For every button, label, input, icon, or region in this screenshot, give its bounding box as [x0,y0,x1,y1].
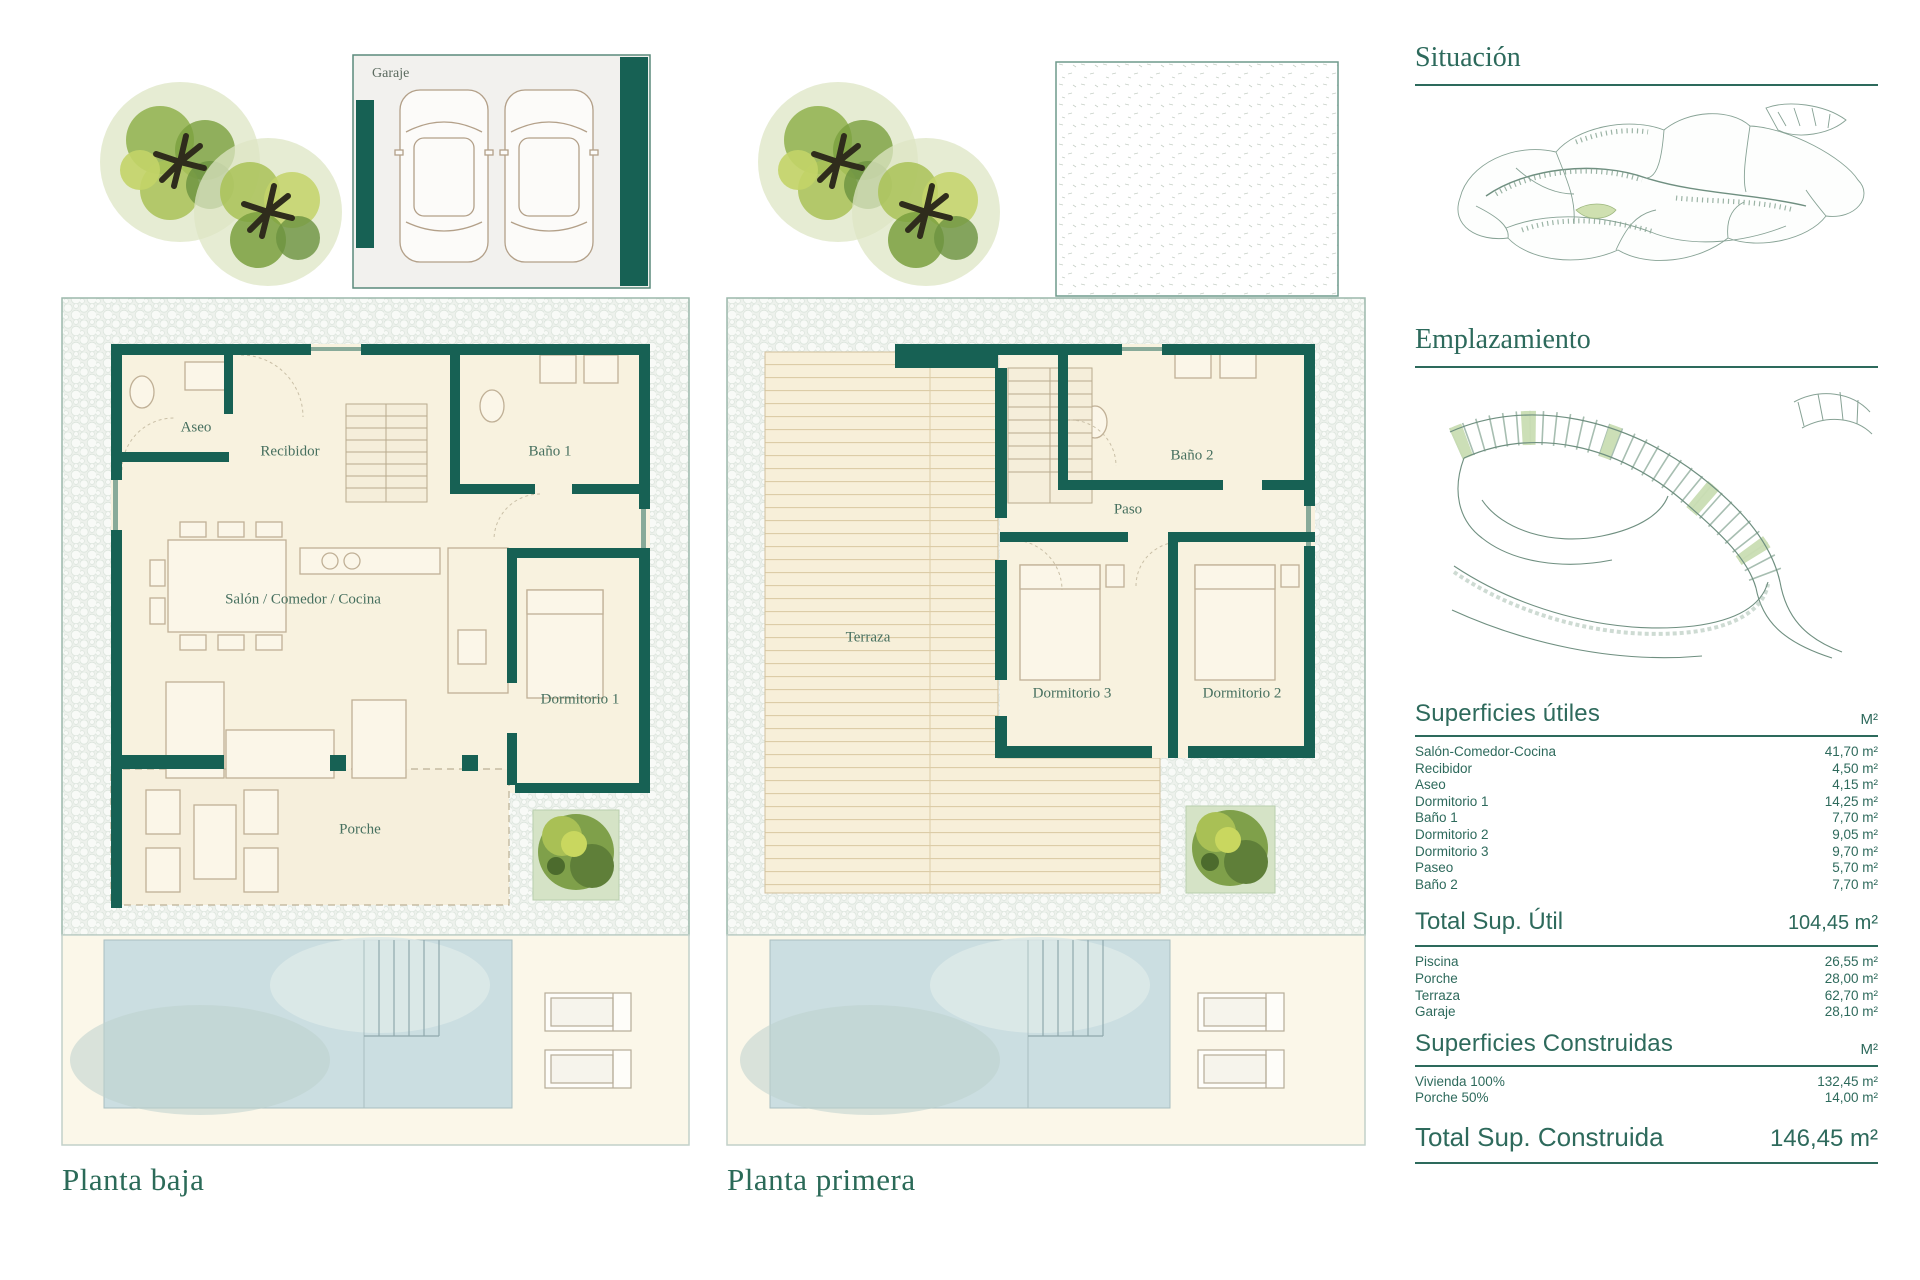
room-label-dormitorio3: Dormitorio 3 [1033,686,1112,703]
utiles-title: Superficies útiles [1415,700,1600,728]
sun-lounger-icon [1198,1050,1284,1088]
situacion-heading: Situación [1415,42,1878,86]
situacion-map [1426,98,1882,298]
room-label-salon: Salón / Comedor / Cocina [225,592,381,609]
emplazamiento-map [1442,380,1882,690]
table-row: Baño 27,70 m² [1415,877,1878,894]
table-row: Baño 17,70 m² [1415,810,1878,827]
room-label-garaje: Garaje [372,66,409,82]
plan-title-primera: Planta primera [727,1162,916,1198]
room-label-paso: Paso [1114,502,1142,519]
table-row: Dormitorio 39,70 m² [1415,844,1878,861]
table-row: Aseo4,15 m² [1415,777,1878,794]
utiles-rows: Salón-Comedor-Cocina41,70 m² Recibidor4,… [1415,737,1878,902]
sun-lounger-icon [1198,993,1284,1031]
table-row: Dormitorio 114,25 m² [1415,794,1878,811]
table-row: Vivienda 100%132,45 m² [1415,1074,1878,1091]
table-row: Piscina26,55 m² [1415,954,1878,971]
table-row: Dormitorio 29,05 m² [1415,827,1878,844]
tree-icon [194,138,342,286]
room-label-aseo: Aseo [181,420,212,437]
table-row: Salón-Comedor-Cocina41,70 m² [1415,744,1878,761]
total-construida: Total Sup. Construida 146,45 m² [1415,1116,1878,1164]
table-row: Terraza62,70 m² [1415,988,1878,1005]
pool [62,935,689,1145]
brochure-page: Garaje Aseo Recibidor Baño 1 Salón / Com… [0,0,1920,1280]
construidas-rows: Vivienda 100%132,45 m² Porche 50%14,00 m… [1415,1067,1878,1116]
room-label-bano1: Baño 1 [529,444,572,461]
sun-lounger-icon [545,1050,631,1088]
bush-icon [1186,806,1275,893]
garage-area [353,55,650,288]
tree-icon [852,138,1000,286]
car-icon [500,90,598,262]
table-row: Garaje28,10 m² [1415,1004,1878,1021]
room-label-bano2: Baño 2 [1171,448,1214,465]
surface-tables: Superficies útiles M² Salón-Comedor-Coci… [1415,700,1878,1164]
emplazamiento-heading: Emplazamiento [1415,324,1878,368]
extras-rows: Piscina26,55 m² Porche28,00 m² Terraza62… [1415,947,1878,1029]
room-label-dormitorio1: Dormitorio 1 [541,692,620,709]
utiles-unit: M² [1861,711,1879,728]
table-row: Recibidor4,50 m² [1415,761,1878,778]
plan-title-baja: Planta baja [62,1162,204,1198]
room-label-dormitorio2: Dormitorio 2 [1203,686,1282,703]
table-row: Porche28,00 m² [1415,971,1878,988]
construidas-header: Superficies Construidas M² [1415,1030,1878,1067]
pool [727,935,1365,1145]
stairs [346,404,427,502]
sun-lounger-icon [545,993,631,1031]
table-row: Porche 50%14,00 m² [1415,1090,1878,1107]
room-label-terraza: Terraza [846,630,891,647]
utiles-header: Superficies útiles M² [1415,700,1878,737]
construidas-title: Superficies Construidas [1415,1030,1673,1058]
construidas-unit: M² [1861,1041,1879,1058]
bush-icon [533,810,619,900]
room-label-recibidor: Recibidor [260,444,319,461]
gravel-area [1056,62,1338,296]
table-row: Paseo5,70 m² [1415,860,1878,877]
car-icon [395,90,493,262]
room-label-porche: Porche [339,822,381,839]
total-util: Total Sup. Útil 104,45 m² [1415,902,1878,947]
